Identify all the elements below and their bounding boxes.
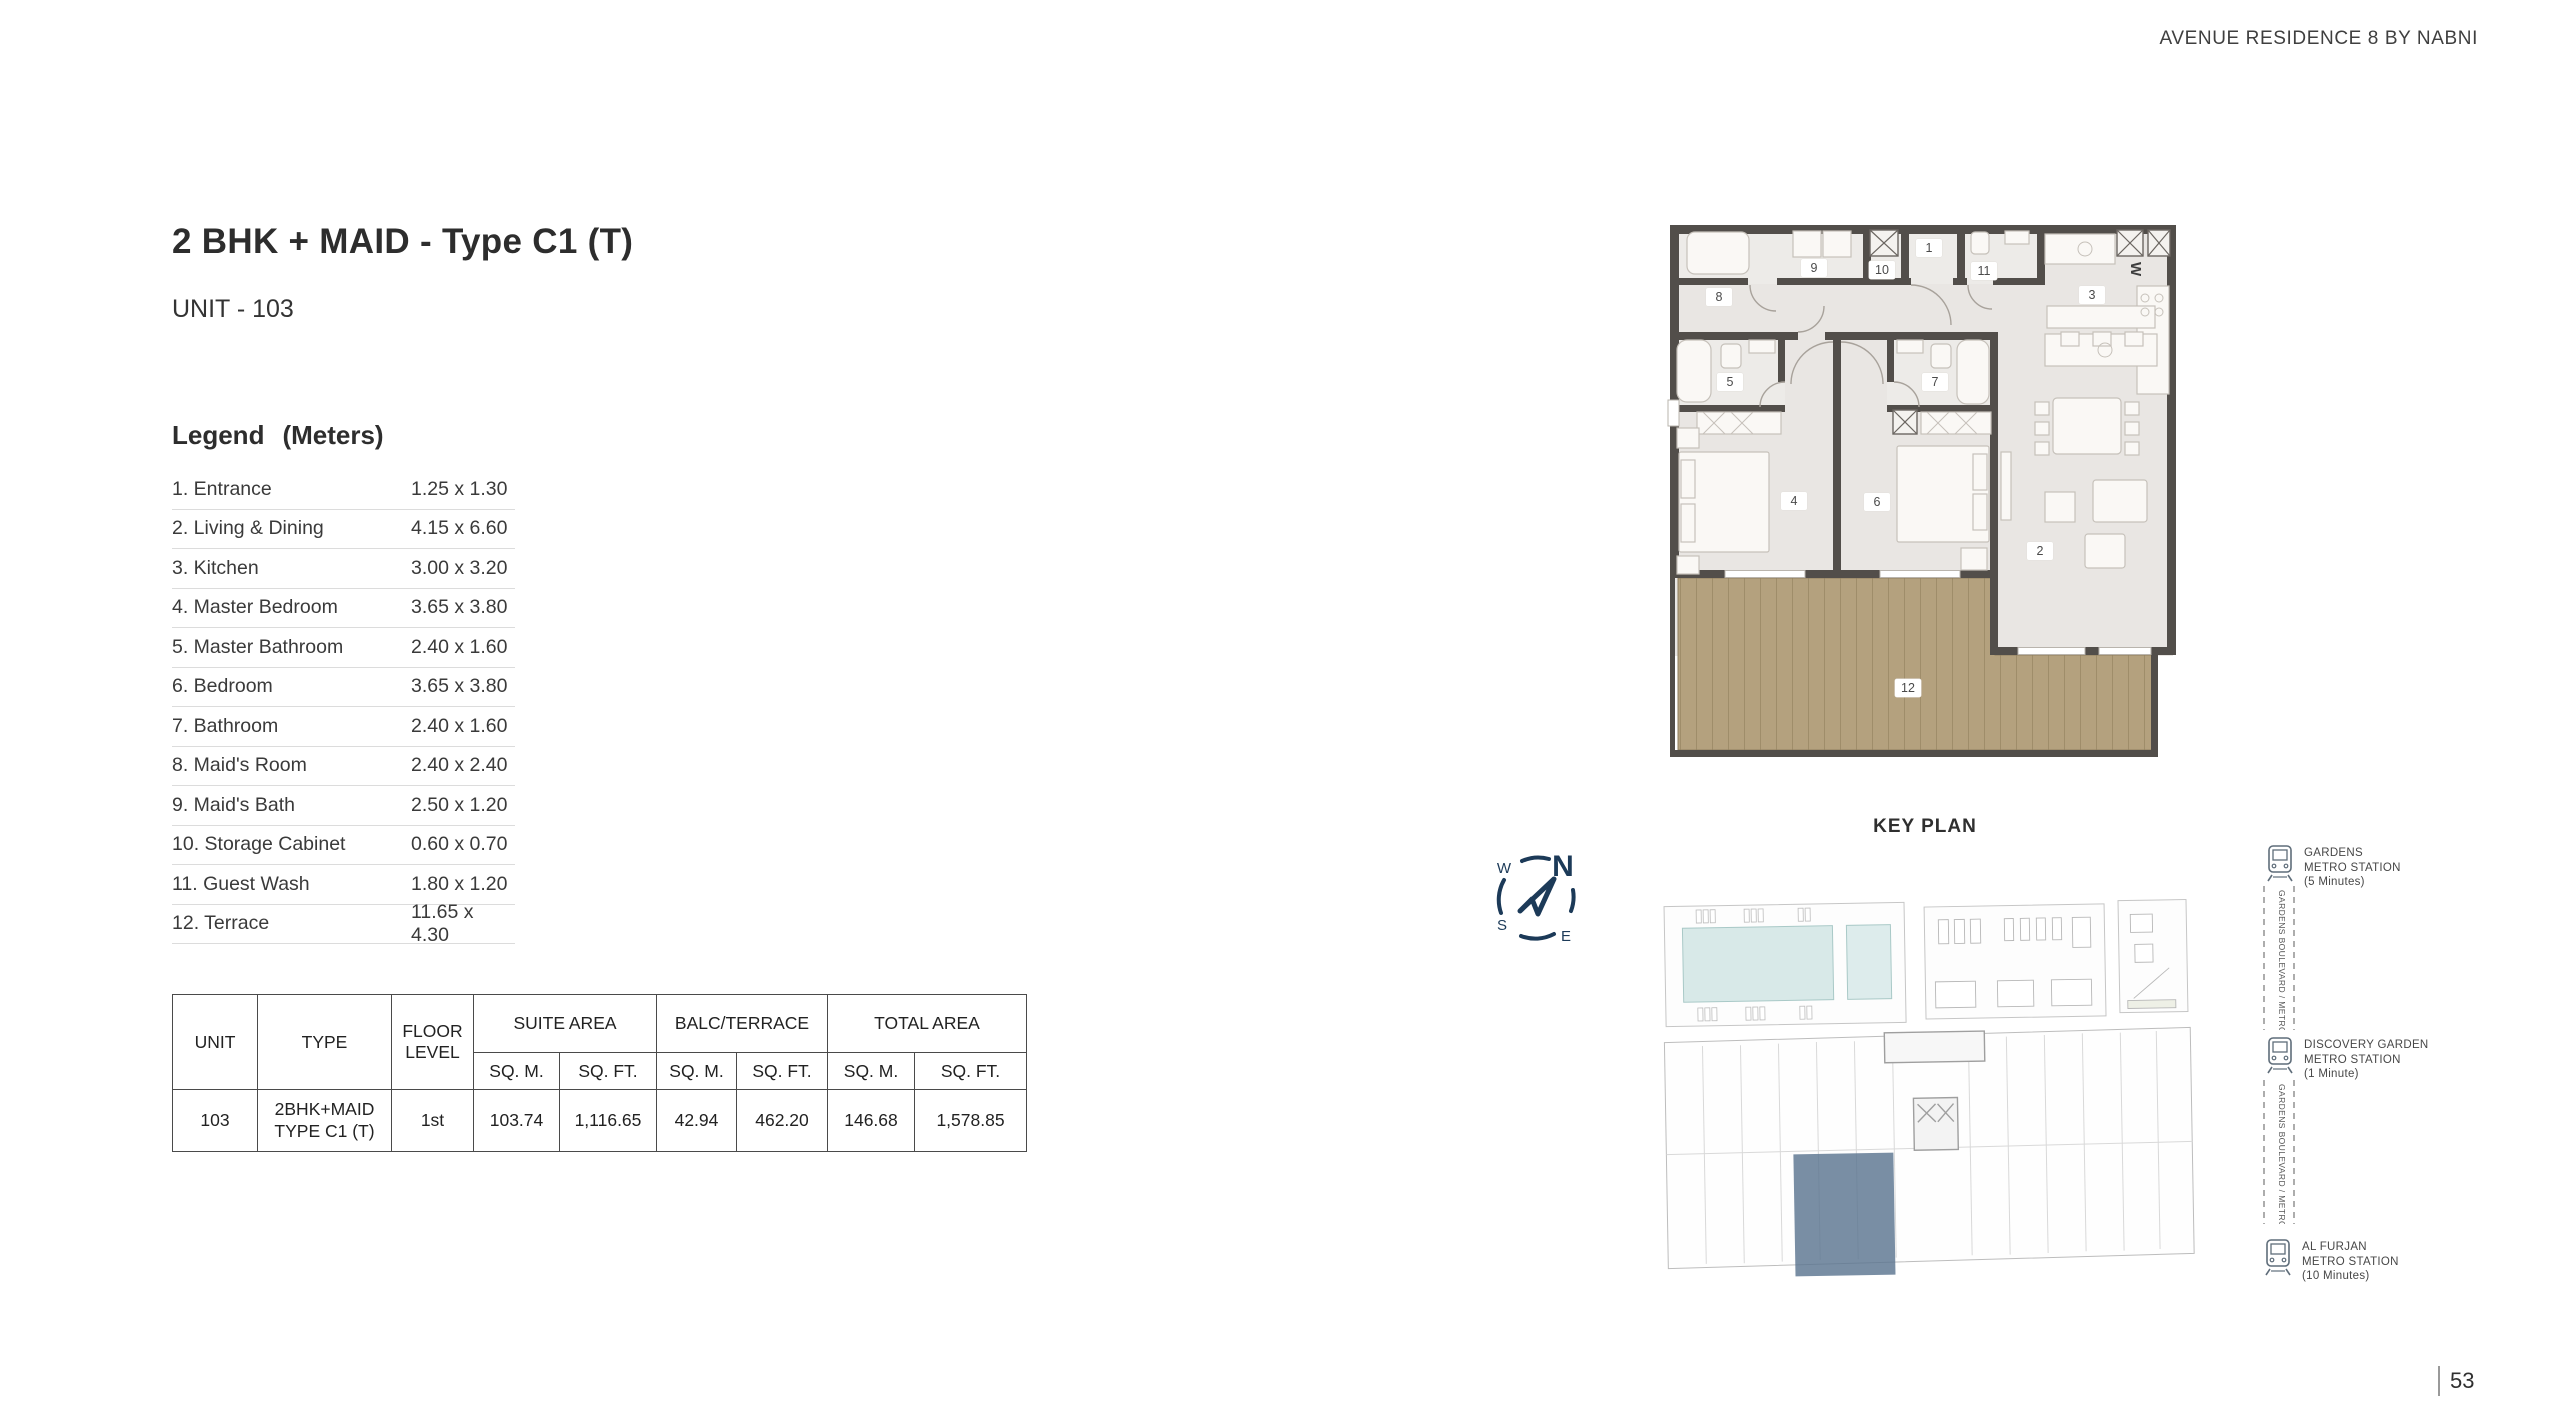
subcol-sqm: SQ. M. [828,1053,915,1090]
legend-title: Legend [172,420,264,450]
metro-station-al-furjan: AL FURJAN METRO STATION (10 Minutes) [2264,1238,2399,1284]
legend-item: 7. Bathroom2.40 x 1.60 [172,707,515,747]
room-label-guest-wash: 11 [1971,262,1997,280]
col-suite-area: SUITE AREA [474,995,657,1053]
subcol-sqft: SQ. FT. [737,1053,828,1090]
room-label-bathroom: 7 [1922,373,1948,391]
legend-units: (Meters) [282,420,383,450]
road-gardens-boulevard: GARDENS BOULEVARD / METRO VIEW [2260,886,2300,1035]
compass-w: W [1497,860,1512,877]
subcol-sqft: SQ. FT. [915,1053,1027,1090]
key-plan-title: KEY PLAN [1845,816,2005,838]
cell-balc-sqft: 462.20 [737,1090,828,1152]
cell-total-sqft: 1,578.85 [915,1090,1027,1152]
legend-item: 3. Kitchen3.00 x 3.20 [172,549,515,589]
col-type: TYPE [258,995,392,1090]
area-table: UNIT TYPE FLOOR LEVEL SUITE AREA BALC/TE… [172,994,1027,1152]
cell-type: 2BHK+MAID TYPE C1 (T) [258,1090,392,1152]
legend-item: 10. Storage Cabinet0.60 x 0.70 [172,826,515,866]
col-total-area: TOTAL AREA [828,995,1027,1053]
compass-n: N [1552,850,1574,883]
col-balc-terrace: BALC/TERRACE [657,995,828,1053]
room-label-terrace: 12 [1895,679,1921,697]
page-title: 2 BHK + MAID - Type C1 (T) [172,222,633,262]
road-gardens-boulevard: GARDENS BOULEVARD / METRO VIEW [2260,1080,2300,1229]
legend-item: 12. Terrace11.65 x 4.30 [172,905,515,945]
train-icon [2266,1036,2294,1074]
legend-item: 9. Maid's Bath2.50 x 1.20 [172,786,515,826]
metro-station-discovery-garden: DISCOVERY GARDEN METRO STATION (1 Minute… [2266,1036,2429,1082]
subcol-sqft: SQ. FT. [560,1053,657,1090]
cell-balc-sqm: 42.94 [657,1090,737,1152]
cell-suite-sqft: 1,116.65 [560,1090,657,1152]
cell-unit: 103 [173,1090,258,1152]
brochure-page: AVENUE RESIDENCE 8 BY NABNI 2 BHK + MAID… [0,0,2560,1414]
legend-item: 4. Master Bedroom3.65 x 3.80 [172,589,515,629]
legend-heading: Legend(Meters) [172,420,384,451]
legend-item: 5. Master Bathroom2.40 x 1.60 [172,628,515,668]
room-label-entrance: 1 [1916,239,1942,257]
compass-s: S [1497,917,1507,934]
train-icon [2266,844,2294,882]
brand-title: AVENUE RESIDENCE 8 BY NABNI [2159,28,2478,50]
legend-list: 1. Entrance1.25 x 1.30 2. Living & Dinin… [172,470,515,944]
cell-floor: 1st [392,1090,474,1152]
train-icon [2264,1238,2292,1276]
page-number-divider [2438,1366,2440,1396]
subcol-sqm: SQ. M. [657,1053,737,1090]
page-number: 53 [2438,1366,2474,1396]
cell-suite-sqm: 103.74 [474,1090,560,1152]
legend-item: 6. Bedroom3.65 x 3.80 [172,668,515,708]
compass-e: E [1561,928,1571,945]
cell-total-sqm: 146.68 [828,1090,915,1152]
col-unit: UNIT [173,995,258,1090]
floor-plan: W 1 2 3 4 5 6 7 8 9 10 11 12 [1665,222,2181,762]
legend-item: 8. Maid's Room2.40 x 2.40 [172,747,515,787]
col-floor: FLOOR LEVEL [392,995,474,1090]
metro-station-gardens: GARDENS METRO STATION (5 Minutes) [2266,844,2401,890]
room-label-kitchen: 3 [2079,286,2105,304]
room-label-bedroom: 6 [1864,493,1890,511]
room-label-maids-room: 8 [1706,288,1732,306]
room-label-master-bath: 5 [1717,373,1743,391]
subcol-sqm: SQ. M. [474,1053,560,1090]
legend-item: 11. Guest Wash1.80 x 1.20 [172,865,515,905]
unit-number: UNIT - 103 [172,295,294,324]
road-label: GARDENS BOULEVARD / METRO VIEW [2277,1084,2287,1224]
table-row: 103 2BHK+MAID TYPE C1 (T) 1st 103.74 1,1… [173,1090,1027,1152]
legend-item: 1. Entrance1.25 x 1.30 [172,470,515,510]
room-label-storage: 10 [1869,261,1895,279]
room-label-maids-bath: 9 [1801,259,1827,277]
road-label: GARDENS BOULEVARD / METRO VIEW [2277,890,2287,1030]
key-plan-highlight [1793,1153,1895,1277]
legend-item: 2. Living & Dining4.15 x 6.60 [172,510,515,550]
compass-icon: N W S E [1487,848,1587,948]
room-label-master-bedroom: 4 [1781,492,1807,510]
washer-label: W [2127,262,2144,277]
room-label-living-dining: 2 [2027,542,2053,560]
key-plan [1655,862,2203,1286]
